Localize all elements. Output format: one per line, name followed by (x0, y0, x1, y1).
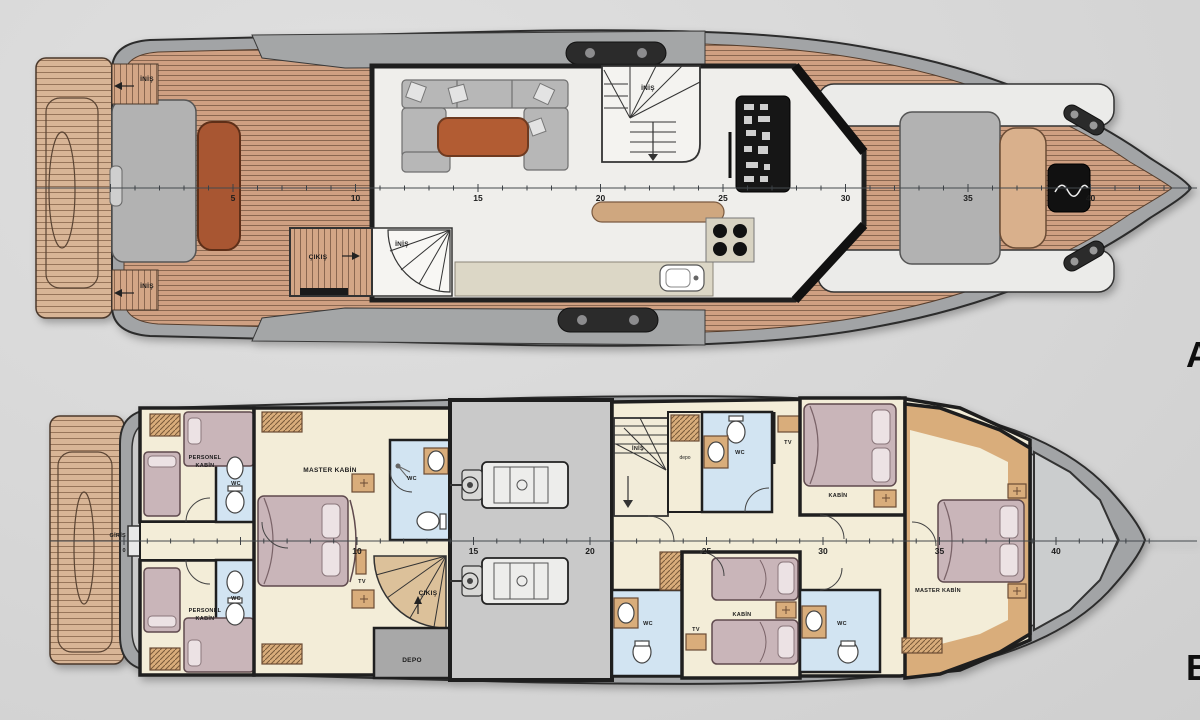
deck-a-plan: İNİŞ İNİŞ (36, 30, 1197, 345)
depo-closet-label: depo (679, 455, 690, 461)
wardrobe (262, 644, 302, 664)
wardrobe (660, 552, 682, 590)
exit-steps (290, 228, 372, 296)
salon: İNİŞ İNİŞ (290, 66, 864, 300)
sink (708, 442, 724, 462)
inis-helm-stairs-label: İNİŞ (641, 84, 655, 92)
deck-b-letter: B (1186, 647, 1200, 688)
station-label: 30 (841, 193, 851, 203)
station-label: 10 (352, 546, 362, 556)
personel-kabin-top-label: PERSONEL (189, 455, 222, 461)
station-label: 25 (718, 193, 728, 203)
sink (227, 457, 243, 479)
wc-guest-top-label: WC (735, 450, 745, 456)
station-label: 40 (1051, 546, 1061, 556)
inis-label-bottom: İNİŞ (140, 282, 154, 290)
deck-b-plan: GİRİŞ PERSON (50, 396, 1197, 684)
master-cabin-mid (254, 408, 450, 678)
sink (428, 451, 444, 471)
cleat (566, 42, 666, 64)
sink (806, 611, 822, 631)
transom-garage-hatch (112, 100, 196, 262)
tv-cabinet (686, 634, 706, 650)
station-label: 15 (473, 193, 483, 203)
aft-lounger (198, 122, 240, 250)
personel-kabin-bottom-label: PERSONEL (189, 608, 222, 614)
guest-stairs (614, 418, 668, 516)
toilet (417, 512, 439, 530)
wc-crew-top-label: WC (231, 481, 241, 487)
station-label: 20 (585, 546, 595, 556)
master-kabin-mid-label: MASTER KABİN (303, 466, 356, 474)
tv-cabinet (778, 416, 800, 432)
side-steps-top (112, 64, 158, 104)
personel-kabin-top-label2: KABİN (196, 462, 215, 469)
station-label: 10 (351, 193, 361, 203)
deck-a-letter: A (1186, 334, 1200, 375)
kabin-bottom-label: KABİN (733, 611, 752, 618)
curved-stairs (372, 228, 452, 296)
wc-master-label: WC (407, 476, 417, 482)
tv-guest-top-label: TV (784, 440, 792, 446)
wardrobe (262, 412, 302, 432)
yacht-deck-plans: İNİŞ İNİŞ (0, 0, 1200, 720)
inis-stairs-label: İNİŞ (632, 445, 644, 452)
station-label: 35 (963, 193, 973, 203)
coffee-table (438, 118, 528, 156)
garage-handle (110, 166, 122, 206)
depo-main-label: DEPO (402, 657, 422, 664)
toilet (727, 421, 745, 443)
depo-room (374, 628, 450, 678)
personel-kabin-bottom-label2: KABİN (196, 615, 215, 622)
tv-master-label: TV (358, 579, 366, 585)
swim-platform-b (50, 416, 124, 664)
helm-console (730, 96, 790, 192)
station-label: 15 (469, 546, 479, 556)
side-steps-bottom (112, 270, 158, 310)
wardrobe (671, 415, 699, 441)
wardrobe (150, 648, 180, 670)
wc-crew-bottom-label: WC (231, 596, 241, 602)
station-label: 5 (231, 193, 236, 203)
plan-canvas: İNİŞ İNİŞ (0, 0, 1200, 720)
station-label: 35 (935, 546, 945, 556)
toilet (226, 491, 244, 513)
station-label: 20 (596, 193, 606, 203)
engine-room (450, 400, 612, 680)
cikis-stairs-label: ÇIKIŞ (419, 590, 438, 597)
sink (618, 603, 634, 623)
faucet-icon (694, 276, 699, 281)
helm-stairs (602, 66, 700, 162)
station-label: 40 (1086, 193, 1096, 203)
wc-guest-mid-label: WC (643, 621, 653, 627)
wc-guest-bottom-label: WC (837, 621, 847, 627)
station-label: 25 (702, 546, 712, 556)
cikis-label: ÇIKIŞ (309, 254, 328, 261)
station-label: 30 (818, 546, 828, 556)
wardrobe (902, 638, 942, 653)
tv-guest-bottom-label: TV (692, 627, 700, 633)
sink (227, 571, 243, 593)
inis-label-top: İNİŞ (140, 75, 154, 83)
cleat (558, 308, 658, 332)
toilet (226, 603, 244, 625)
station-zero-label: 0 (122, 548, 125, 554)
wardrobe (150, 414, 180, 436)
kabin-top-label: KABİN (829, 492, 848, 499)
bar-counter (592, 202, 724, 222)
master-bow-label: MASTER KABİN (915, 587, 961, 594)
inis-curved-stairs-label: İNİŞ (395, 240, 409, 248)
stove-base (706, 218, 754, 262)
